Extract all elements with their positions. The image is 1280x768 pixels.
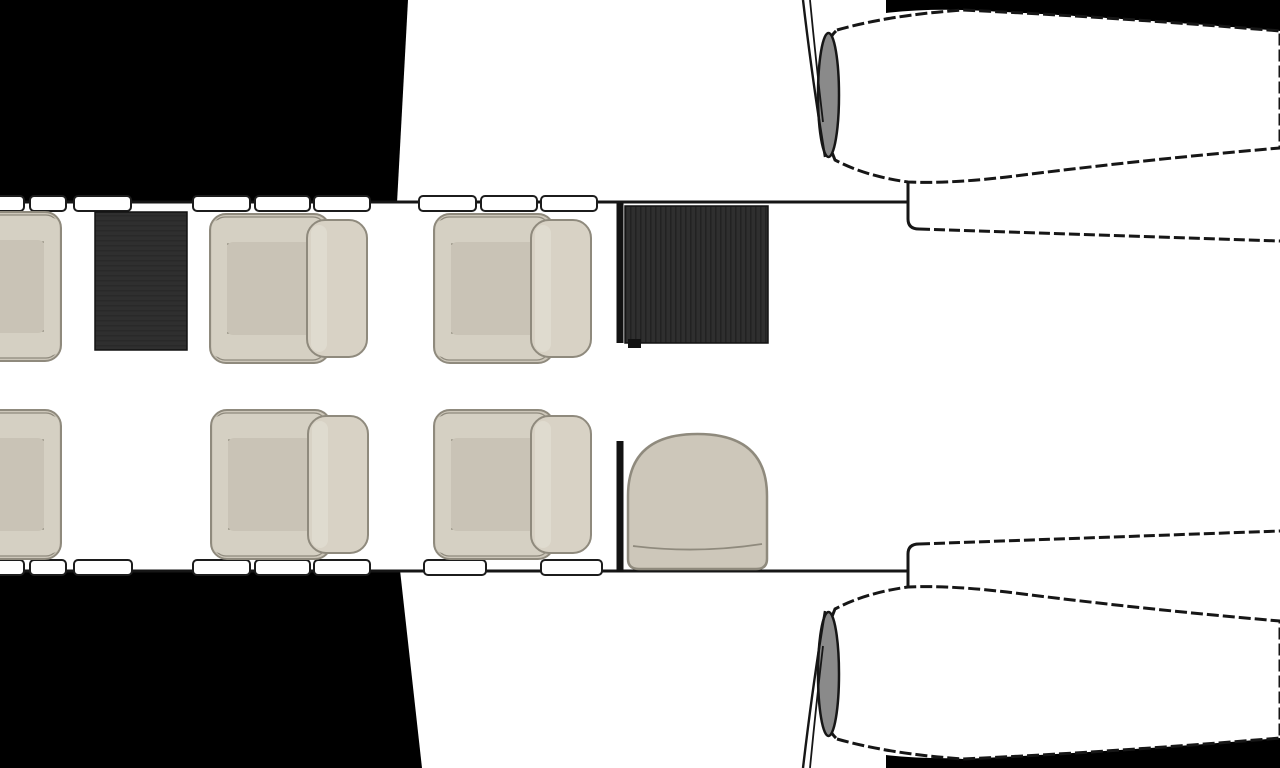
club-seat-fwd-right-window [0, 410, 61, 559]
cabin-window [314, 196, 370, 211]
aft-partition [617, 441, 624, 572]
wing-forward-right [0, 570, 422, 768]
cabinet-forward [95, 212, 187, 350]
wing-forward-left [0, 0, 408, 203]
club-seat-fwd-left-window [0, 212, 61, 361]
cabin-window [419, 196, 476, 211]
cabin-floorplan [0, 0, 1280, 768]
cabin-window [0, 560, 24, 575]
engine-nacelle-bottom [818, 587, 1280, 759]
cabinet-aft-wall [617, 203, 624, 343]
cabin-window [193, 560, 250, 575]
fuselage-taper-bottom [919, 531, 1280, 544]
floorplan-canvas [0, 0, 1280, 768]
cabin-window [193, 196, 250, 211]
club-seat-mid-left-2 [434, 214, 591, 363]
cabin-windows-bottom [0, 560, 602, 575]
cabin-window [541, 560, 602, 575]
club-seat-mid-right-1 [211, 410, 368, 559]
cabin-window [424, 560, 486, 575]
cabin-window [30, 560, 66, 575]
cabinet-aft-foot [628, 339, 641, 348]
cabin-window [314, 560, 370, 575]
cabin-window [30, 196, 66, 211]
engine-nacelle-top [818, 10, 1280, 182]
cabin-window [74, 196, 131, 211]
aft-side-seat [628, 434, 767, 569]
cabin-window [255, 196, 310, 211]
club-seat-mid-right-2 [434, 410, 591, 559]
cabinet-aft [625, 206, 768, 343]
fuselage-taper-corner-top [908, 180, 919, 229]
cabin-window [481, 196, 537, 211]
cabin-window [541, 196, 597, 211]
fuselage-taper-corner-bottom [908, 544, 919, 592]
cabin-windows-top [0, 196, 597, 211]
cabin-window [0, 196, 24, 211]
cabin-window [74, 560, 132, 575]
club-seat-mid-left-1 [210, 214, 367, 363]
cabin-window [255, 560, 310, 575]
fuselage-taper-top [919, 229, 1280, 241]
